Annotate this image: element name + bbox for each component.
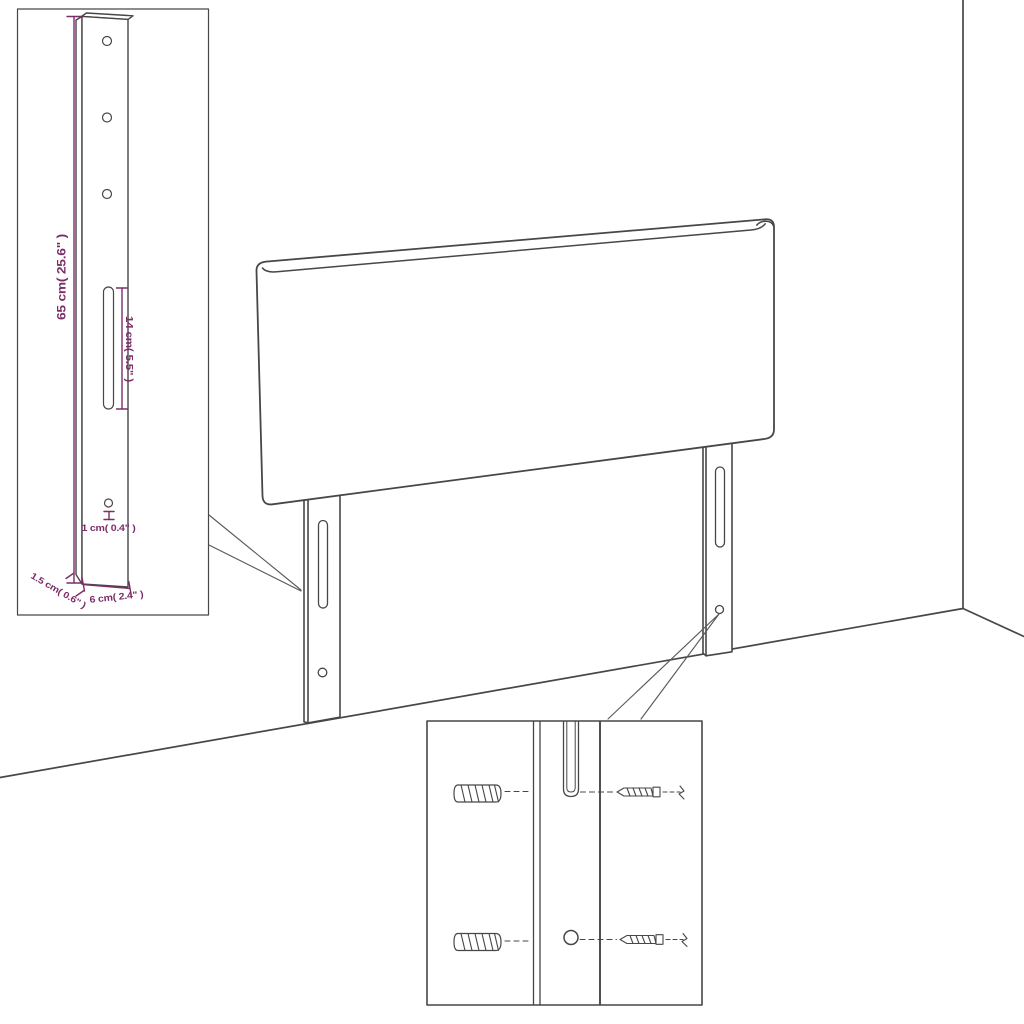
line-art (0, 0, 1024, 1005)
headboard-panel-group (256, 219, 774, 504)
floor-line-left (0, 609, 963, 778)
dim-label-hole-diameter: 1 cm( 0.4" ) (82, 523, 136, 533)
wall-anchor-icon (454, 934, 501, 951)
inset-leg-side-face (76, 16, 82, 584)
dim-label-slot-length: 14 cm( 5.5" ) (123, 316, 134, 382)
callout-to-left-leg (209, 515, 301, 591)
inset2-slot-outer (564, 718, 579, 797)
screw-inset (427, 718, 702, 1005)
headboard-assembly-diagram: 65 cm( 25.6" ) 14 cm( 5.5" ) 1 cm( 0.4" … (0, 0, 1024, 1024)
screw-inset-box (427, 721, 702, 1005)
floor-line-right (963, 609, 1024, 637)
wall-anchor-icon (454, 785, 501, 802)
inset2-hole (564, 931, 578, 945)
inset2-leg-lines (534, 721, 541, 1005)
screw-inset-content (454, 718, 687, 1005)
product-diagram-page: 65 cm( 25.6" ) 14 cm( 5.5" ) 1 cm( 0.4" … (0, 0, 1024, 1024)
dim-label-leg-height: 65 cm( 25.6" ) (57, 234, 69, 320)
leg-cutouts (318, 467, 724, 677)
inset2-slot-inner (567, 718, 575, 792)
screw-icon (617, 786, 684, 799)
dim-label-leg-width: 6 cm( 2.4" ) (89, 589, 144, 606)
callout-to-screw-inset (608, 614, 719, 719)
screw-icon (620, 934, 687, 947)
inset-leg-drawing (76, 13, 133, 587)
headboard-panel (256, 219, 774, 504)
right-leg (703, 441, 732, 656)
callout-lines (209, 515, 719, 719)
